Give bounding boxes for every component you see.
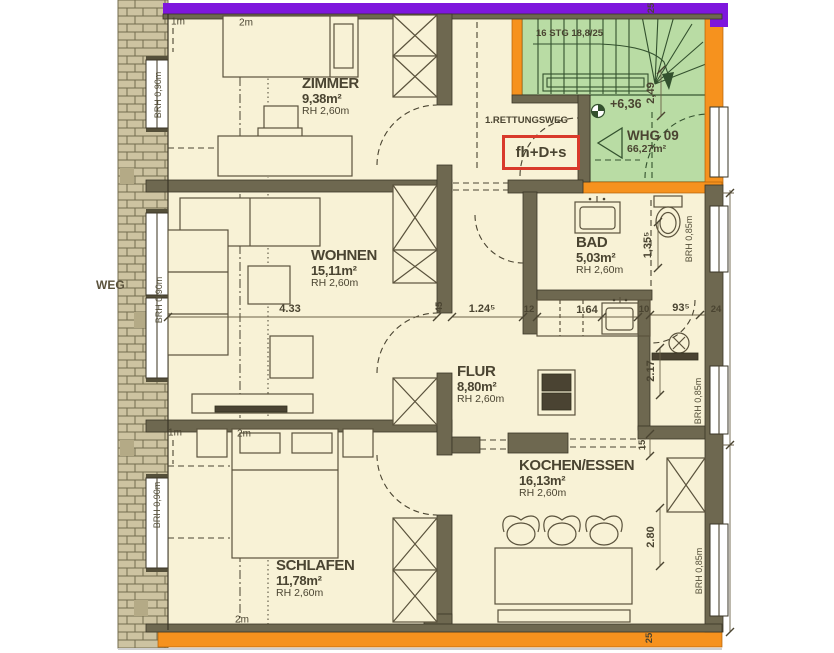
room-label-flur: FLUR 8,80m² RH 2,60m bbox=[457, 364, 504, 406]
shaft-box bbox=[393, 185, 437, 250]
coffee-table-icon bbox=[248, 266, 290, 304]
shaft-box bbox=[393, 56, 437, 97]
nightstand-icon bbox=[197, 429, 227, 457]
bath-sink-icon bbox=[575, 196, 620, 233]
sill-label: BRH 0,90m bbox=[154, 72, 164, 119]
dim-label: 1,35⁵ bbox=[643, 232, 655, 259]
dim-label: 25 bbox=[645, 633, 655, 644]
roof-line-label: 1m bbox=[171, 18, 185, 29]
window bbox=[710, 366, 728, 434]
room-area: 15,11m² bbox=[311, 264, 377, 278]
room-area: 5,03m² bbox=[576, 251, 623, 265]
room-label-zimmer: ZIMMER 9,38m² RH 2,60m bbox=[302, 76, 359, 118]
dim-label: 15 bbox=[638, 440, 648, 451]
room-name: WOHNEN bbox=[311, 248, 377, 264]
stair-label: 16 STG 18,8/25 bbox=[536, 29, 603, 39]
desk-icon bbox=[218, 136, 352, 176]
sill-label: BRH 0,90m bbox=[153, 482, 163, 529]
armchair-icon bbox=[270, 336, 313, 378]
room-label-schlafen: SCHLAFEN 11,78m² RH 2,60m bbox=[276, 558, 354, 600]
dim-label: 25 bbox=[647, 3, 657, 14]
room-label-kochen-essen: KOCHEN/ESSEN 16,13m² RH 2,60m bbox=[519, 458, 634, 500]
room-height: RH 2,60m bbox=[311, 278, 377, 289]
apartment-name: WHG 09 bbox=[627, 129, 679, 144]
tv-board-icon bbox=[192, 394, 313, 413]
apartment-label: WHG 09 66,27m² bbox=[627, 129, 679, 155]
shaft-box bbox=[393, 378, 437, 425]
roof-line-label: 2m bbox=[237, 430, 251, 441]
dim-label: 1.24⁵ bbox=[469, 304, 496, 316]
room-height: RH 2,60m bbox=[576, 265, 623, 276]
level-label: +6,36 bbox=[610, 98, 642, 112]
dim-label: 4.33 bbox=[279, 304, 300, 316]
dining-table-icon bbox=[495, 548, 632, 604]
room-label-wohnen: WOHNEN 15,11m² RH 2,60m bbox=[311, 248, 377, 290]
nightstand-icon bbox=[343, 429, 373, 457]
dim-label: 24 bbox=[711, 305, 722, 315]
dim-label: 12 bbox=[524, 305, 535, 315]
window bbox=[710, 524, 728, 616]
dim-label: 2.17 bbox=[646, 360, 658, 381]
escape-door-code-box: fh+D+s bbox=[502, 135, 580, 170]
shaft-box bbox=[393, 15, 437, 56]
dim-label: 10 bbox=[639, 305, 650, 315]
sill-label: BRH 0,85m bbox=[685, 216, 695, 263]
room-area: 16,13m² bbox=[519, 474, 634, 488]
room-name: BAD bbox=[576, 235, 623, 251]
shaft-box bbox=[393, 250, 437, 283]
room-name: ZIMMER bbox=[302, 76, 359, 92]
dim-label: 93⁵ bbox=[672, 303, 689, 315]
double-bed-icon bbox=[232, 429, 338, 558]
sill-label: BRH 0,85m bbox=[695, 548, 705, 595]
room-height: RH 2,60m bbox=[276, 588, 354, 599]
room-area: 8,80m² bbox=[457, 380, 504, 394]
room-name: KOCHEN/ESSEN bbox=[519, 458, 634, 474]
sill-label: BRH 0,90m bbox=[155, 277, 165, 324]
room-name: SCHLAFEN bbox=[276, 558, 354, 574]
sideboard-icon bbox=[498, 610, 630, 622]
shaft-box bbox=[393, 518, 437, 570]
shaft-box bbox=[393, 570, 437, 622]
floor-plan: .w{fill:#6e6850;stroke:#3a3526;stroke-wi… bbox=[0, 0, 834, 653]
apartment-area: 66,27m² bbox=[627, 144, 679, 155]
window bbox=[710, 107, 728, 177]
room-area: 9,38m² bbox=[302, 92, 359, 106]
dim-label: 2.80 bbox=[646, 526, 658, 547]
sill-label: BRH 0,85m bbox=[694, 378, 704, 425]
roof-line-label: 2m bbox=[235, 616, 249, 627]
shaft-box bbox=[667, 458, 705, 512]
roof-line-label: 2m bbox=[239, 19, 253, 30]
room-height: RH 2,60m bbox=[302, 106, 359, 117]
dim-label: 2,49 bbox=[646, 82, 658, 103]
weg-label: WEG bbox=[96, 279, 125, 292]
floor-plan-drawing: .w{fill:#6e6850;stroke:#3a3526;stroke-wi… bbox=[0, 0, 834, 653]
room-height: RH 2,60m bbox=[519, 488, 634, 499]
chimney-shaft bbox=[538, 370, 575, 415]
kitchen-sink-icon bbox=[602, 297, 638, 334]
window bbox=[710, 206, 728, 272]
room-label-bad: BAD 5,03m² RH 2,60m bbox=[576, 235, 623, 277]
level-marker-icon bbox=[592, 105, 605, 118]
room-area: 11,78m² bbox=[276, 574, 354, 588]
room-name: FLUR bbox=[457, 364, 504, 380]
roof-line-label: 1m bbox=[168, 429, 182, 440]
escape-route-label: 1.RETTUNGSWEG bbox=[485, 116, 568, 126]
dim-label: 1.64 bbox=[576, 305, 597, 317]
room-height: RH 2,60m bbox=[457, 394, 504, 405]
dim-label: 45 bbox=[435, 302, 445, 313]
